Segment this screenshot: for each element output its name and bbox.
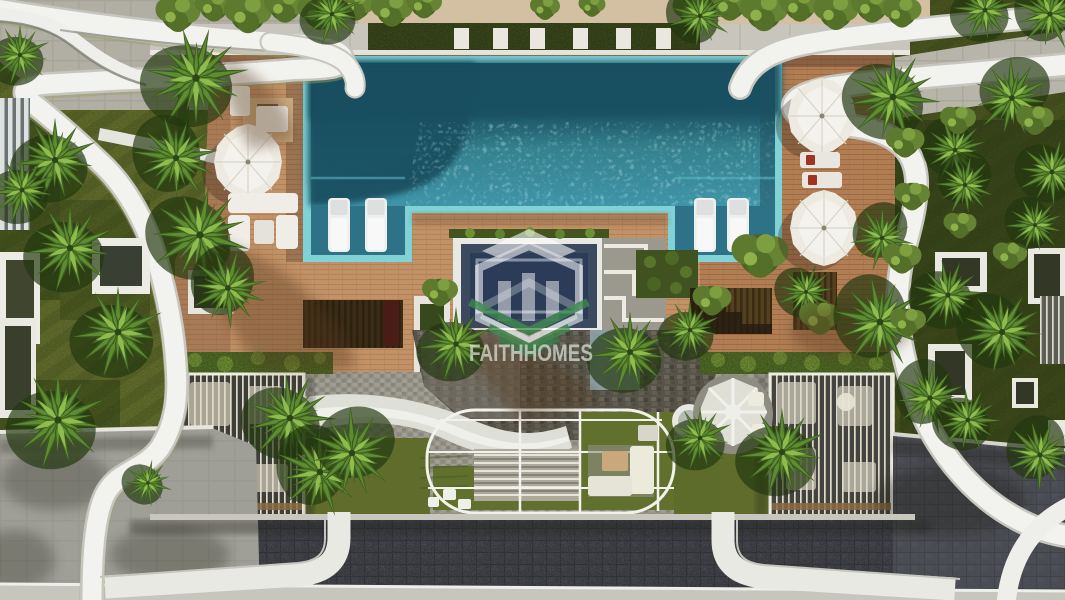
svg-text:FAITHHOMES: FAITHHOMES <box>469 340 593 367</box>
